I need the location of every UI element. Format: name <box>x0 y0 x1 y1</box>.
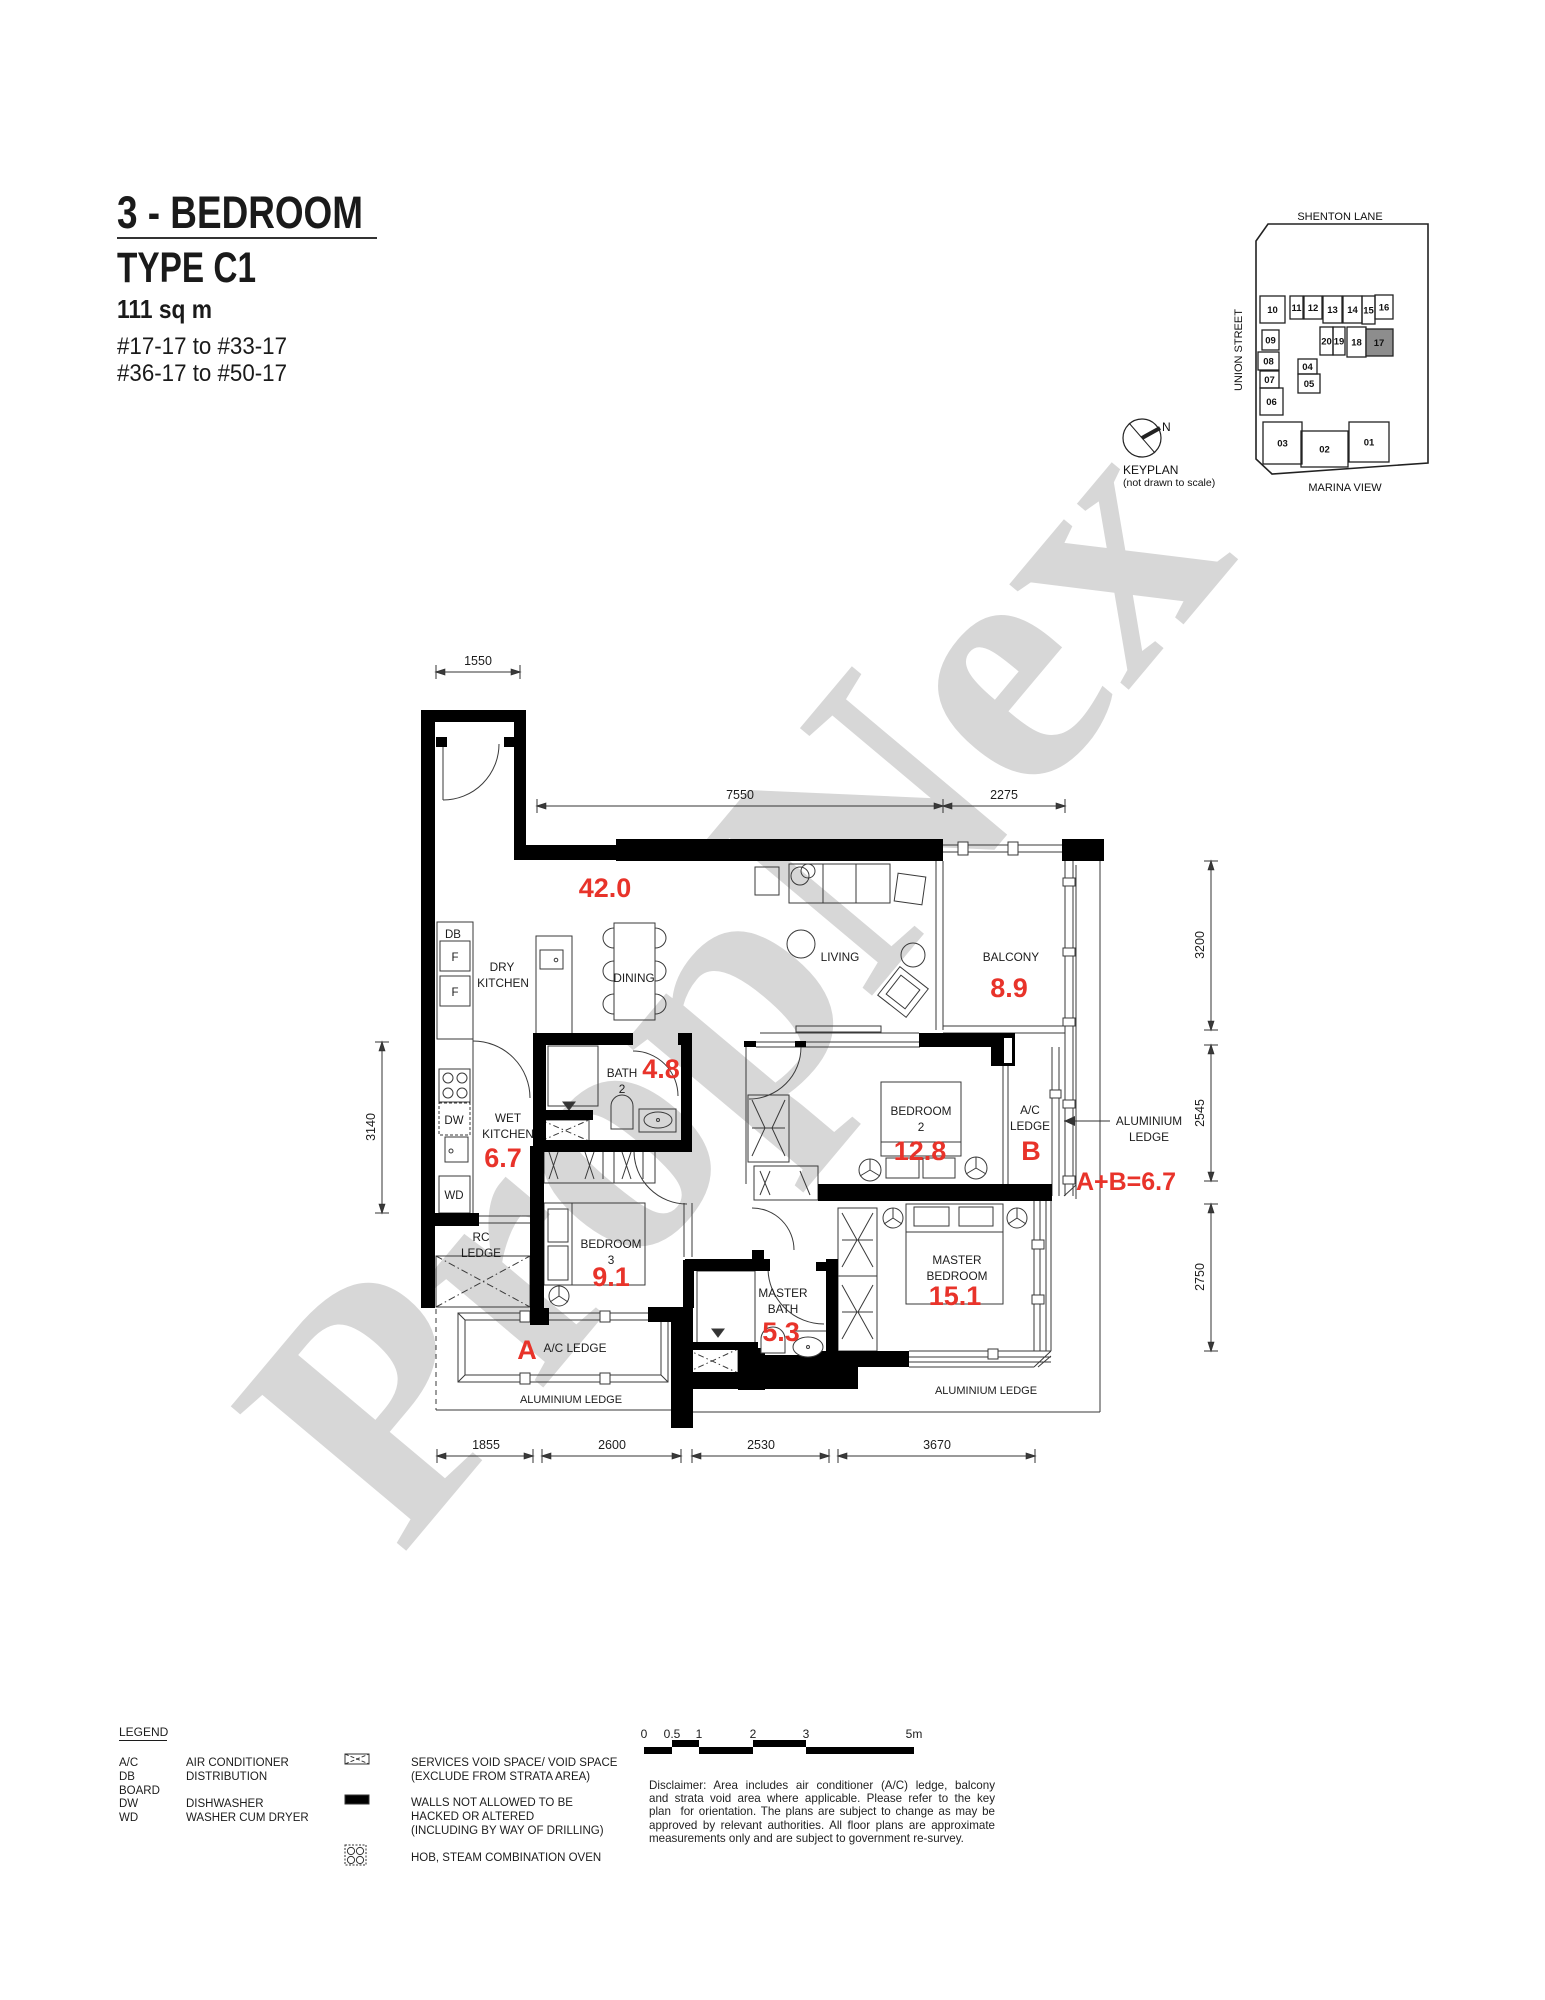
svg-text:0: 0 <box>641 1727 648 1741</box>
svg-text:10: 10 <box>1267 305 1278 316</box>
svg-text:19: 19 <box>1334 337 1345 348</box>
svg-text:16: 16 <box>1379 303 1390 314</box>
svg-text:2: 2 <box>918 1120 925 1134</box>
svg-text:DW: DW <box>119 1798 138 1810</box>
svg-text:2750: 2750 <box>1193 1263 1207 1291</box>
svg-text:WALLS NOT ALLOWED TO BE: WALLS NOT ALLOWED TO BE <box>411 1797 573 1809</box>
svg-text:MASTER: MASTER <box>932 1253 981 1267</box>
svg-text:11: 11 <box>1291 303 1302 314</box>
svg-text:LEDGE: LEDGE <box>1129 1130 1169 1144</box>
svg-text:SERVICES VOID SPACE/ VOID SPAC: SERVICES VOID SPACE/ VOID SPACE <box>411 1757 618 1769</box>
svg-text:3200: 3200 <box>1193 931 1207 959</box>
svg-text:AIR CONDITIONER: AIR CONDITIONER <box>186 1757 289 1769</box>
svg-text:2275: 2275 <box>990 788 1018 802</box>
svg-text:DRY: DRY <box>490 960 515 974</box>
svg-text:07: 07 <box>1264 375 1275 386</box>
svg-text:ALUMINIUM LEDGE: ALUMINIUM LEDGE <box>520 1394 622 1406</box>
svg-text:LEDGE: LEDGE <box>461 1246 501 1260</box>
svg-text:UNION STREET: UNION STREET <box>1233 309 1245 391</box>
svg-text:0.5: 0.5 <box>664 1727 681 1741</box>
svg-text:3: 3 <box>803 1727 810 1741</box>
svg-text:111 sq m: 111 sq m <box>117 294 212 324</box>
svg-text:3140: 3140 <box>364 1113 378 1141</box>
svg-text:BEDROOM: BEDROOM <box>891 1104 952 1118</box>
svg-text:03: 03 <box>1277 439 1288 450</box>
svg-text:A/C LEDGE: A/C LEDGE <box>544 1341 607 1355</box>
svg-text:1855: 1855 <box>472 1438 500 1452</box>
svg-text:4.8: 4.8 <box>642 1054 680 1084</box>
svg-text:BALCONY: BALCONY <box>983 950 1040 964</box>
svg-text:SHENTON LANE: SHENTON LANE <box>1297 211 1382 223</box>
svg-text:BEDROOM: BEDROOM <box>581 1237 642 1251</box>
svg-text:KEYPLAN: KEYPLAN <box>1123 463 1178 477</box>
svg-text:LEDGE: LEDGE <box>1010 1119 1050 1133</box>
svg-text:2600: 2600 <box>598 1438 626 1452</box>
svg-text:ALUMINIUM LEDGE: ALUMINIUM LEDGE <box>935 1385 1037 1397</box>
svg-text:DISTRIBUTION: DISTRIBUTION <box>186 1771 267 1783</box>
svg-text:04: 04 <box>1302 362 1313 373</box>
svg-text:5.3: 5.3 <box>762 1317 800 1347</box>
svg-text:WET: WET <box>495 1111 521 1125</box>
svg-text:B: B <box>1021 1136 1041 1166</box>
svg-text:A/C: A/C <box>119 1757 138 1769</box>
svg-text:DW: DW <box>444 1115 463 1127</box>
svg-text:15.1: 15.1 <box>929 1281 982 1311</box>
svg-text:5m: 5m <box>906 1727 923 1741</box>
svg-text:2545: 2545 <box>1193 1099 1207 1127</box>
svg-text:HOB, STEAM COMBINATION OVEN: HOB, STEAM COMBINATION OVEN <box>411 1852 601 1864</box>
svg-text:42.0: 42.0 <box>579 873 632 903</box>
svg-text:2: 2 <box>619 1082 626 1096</box>
svg-text:(INCLUDING BY WAY OF DRILLING): (INCLUDING BY WAY OF DRILLING) <box>411 1825 604 1837</box>
svg-text:N: N <box>1162 420 1171 434</box>
svg-text:DB: DB <box>119 1771 135 1783</box>
svg-text:ALUMINIUM: ALUMINIUM <box>1116 1114 1182 1128</box>
svg-text:A: A <box>517 1335 537 1365</box>
svg-text:01: 01 <box>1364 438 1375 449</box>
svg-text:BATH: BATH <box>607 1066 638 1080</box>
svg-text:A+B=6.7: A+B=6.7 <box>1076 1168 1176 1196</box>
svg-text:15: 15 <box>1363 306 1374 317</box>
svg-text:1550: 1550 <box>464 654 492 668</box>
svg-text:DINING: DINING <box>613 971 654 985</box>
svg-text:12: 12 <box>1308 303 1319 314</box>
svg-text:(not drawn to scale): (not drawn to scale) <box>1123 477 1215 489</box>
svg-text:9.1: 9.1 <box>592 1262 630 1292</box>
svg-text:F: F <box>451 952 458 964</box>
svg-text:WASHER CUM DRYER: WASHER CUM DRYER <box>186 1812 309 1824</box>
svg-text:KITCHEN: KITCHEN <box>482 1127 534 1141</box>
svg-text:DB: DB <box>445 929 461 941</box>
svg-text:12.8: 12.8 <box>894 1136 947 1166</box>
svg-text:BATH: BATH <box>768 1302 799 1316</box>
svg-text:LIVING: LIVING <box>821 950 860 964</box>
svg-text:LEGEND: LEGEND <box>119 1725 169 1739</box>
svg-text:#17-17 to #33-17: #17-17 to #33-17 <box>117 333 287 360</box>
svg-text:TYPE C1: TYPE C1 <box>117 244 256 292</box>
svg-text:17: 17 <box>1374 338 1385 349</box>
svg-text:14: 14 <box>1347 305 1358 316</box>
svg-text:RC: RC <box>472 1230 490 1244</box>
svg-text:05: 05 <box>1304 379 1315 390</box>
svg-text:DISHWASHER: DISHWASHER <box>186 1798 264 1810</box>
svg-text:13: 13 <box>1327 305 1338 316</box>
svg-text:(EXCLUDE FROM STRATA AREA): (EXCLUDE FROM STRATA AREA) <box>411 1771 590 1783</box>
svg-text:20: 20 <box>1321 337 1332 348</box>
svg-text:6.7: 6.7 <box>484 1143 522 1173</box>
svg-text:18: 18 <box>1351 338 1362 349</box>
svg-text:3 - BEDROOM: 3 - BEDROOM <box>117 187 363 238</box>
svg-text:7550: 7550 <box>726 788 754 802</box>
svg-text:BOARD: BOARD <box>119 1785 160 1797</box>
svg-text:KITCHEN: KITCHEN <box>477 976 529 990</box>
svg-text:3670: 3670 <box>923 1438 951 1452</box>
svg-text:WD: WD <box>444 1190 463 1202</box>
svg-text:MARINA VIEW: MARINA VIEW <box>1308 482 1382 494</box>
svg-text:08: 08 <box>1263 357 1274 368</box>
svg-text:1: 1 <box>696 1727 703 1741</box>
svg-text:06: 06 <box>1266 397 1277 408</box>
svg-text:HACKED OR ALTERED: HACKED OR ALTERED <box>411 1811 534 1823</box>
svg-text:#36-17 to #50-17: #36-17 to #50-17 <box>117 360 287 387</box>
svg-text:2530: 2530 <box>747 1438 775 1452</box>
svg-text:02: 02 <box>1319 445 1330 456</box>
svg-text:09: 09 <box>1265 336 1276 347</box>
svg-text:WD: WD <box>119 1812 138 1824</box>
svg-text:MASTER: MASTER <box>758 1286 807 1300</box>
svg-text:8.9: 8.9 <box>990 973 1028 1003</box>
svg-text:2: 2 <box>750 1727 757 1741</box>
svg-text:F: F <box>451 987 458 999</box>
svg-text:A/C: A/C <box>1020 1103 1040 1117</box>
